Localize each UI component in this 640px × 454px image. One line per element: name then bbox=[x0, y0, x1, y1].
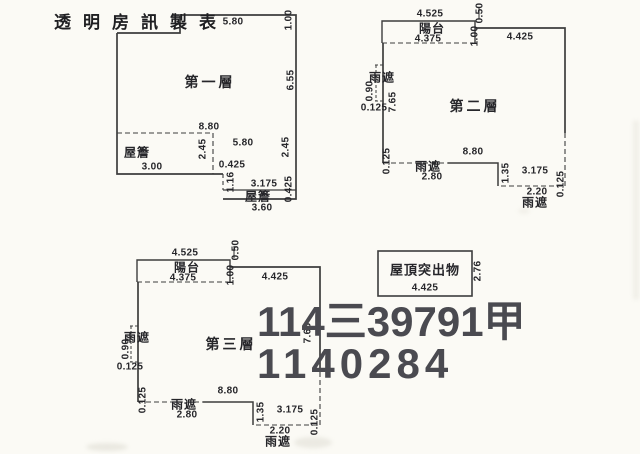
dim-label: 0.125 bbox=[361, 103, 388, 114]
dim-label: 2.45 bbox=[198, 139, 209, 160]
floor2-name: 第二層 bbox=[450, 96, 501, 116]
case-number-watermark-line1: 114三39791甲 bbox=[257, 301, 526, 343]
dim-label: 4.375 bbox=[415, 34, 442, 45]
dim-label: 3.00 bbox=[142, 162, 163, 173]
dim-label: 2.45 bbox=[281, 137, 292, 158]
roof-protrusion-label: 屋頂突出物 bbox=[390, 260, 460, 279]
dim-label: 0.125 bbox=[138, 387, 149, 414]
dim-label: 2.76 bbox=[473, 261, 484, 282]
dim-label: 0.425 bbox=[219, 160, 246, 171]
floor1-name: 第一層 bbox=[185, 72, 236, 92]
dim-label: 0.125 bbox=[382, 148, 393, 175]
dim-label: 2.80 bbox=[422, 172, 443, 183]
floor3-name: 第三層 bbox=[206, 334, 257, 354]
dim-label: 1.35 bbox=[501, 163, 512, 184]
dim-label: 3.175 bbox=[522, 166, 549, 177]
canopy-label: 雨遮 bbox=[265, 433, 291, 450]
dim-label: 1.35 bbox=[256, 402, 267, 423]
dim-label: 4.375 bbox=[170, 273, 197, 284]
dim-label: 0.125 bbox=[310, 409, 321, 436]
dim-label: 0.90 bbox=[121, 339, 132, 360]
dim-label: 8.80 bbox=[218, 386, 239, 397]
dim-label: 4.425 bbox=[507, 32, 534, 43]
dim-label: 0.125 bbox=[556, 171, 567, 198]
dim-label: 4.425 bbox=[262, 272, 289, 283]
dim-label: 1.16 bbox=[226, 172, 237, 193]
dim-label: 8.80 bbox=[463, 147, 484, 158]
dim-label: 1.00 bbox=[470, 26, 481, 47]
dim-label: 3.60 bbox=[252, 203, 273, 214]
dim-label: 0.50 bbox=[231, 240, 242, 261]
dim-label: 0.125 bbox=[117, 362, 144, 373]
document-title: 透明房訊製表 bbox=[54, 8, 228, 33]
dim-label: 1.00 bbox=[284, 10, 295, 31]
case-number-watermark-line2: 1140284 bbox=[257, 343, 453, 385]
dim-label: 4.425 bbox=[412, 283, 439, 294]
dim-label: 6.55 bbox=[286, 70, 297, 91]
dim-label: 0.425 bbox=[284, 176, 295, 203]
eave-label: 屋簷 bbox=[124, 144, 150, 161]
dim-label: 2.80 bbox=[177, 410, 198, 421]
floor-plan-document: 透明房訊製表 第一層 5.80 1.00 6.55 8.80 5.80 2.45… bbox=[0, 0, 640, 454]
dim-label: 0.90 bbox=[365, 81, 376, 102]
dim-label: 3.175 bbox=[277, 405, 304, 416]
dim-label: 5.80 bbox=[233, 138, 254, 149]
dim-label: 7.65 bbox=[388, 92, 399, 113]
dim-label: 4.525 bbox=[417, 9, 444, 20]
dim-label: 8.80 bbox=[199, 122, 220, 133]
dim-label: 0.50 bbox=[475, 3, 486, 24]
canopy-label: 雨遮 bbox=[522, 194, 548, 211]
dim-label: 1.00 bbox=[226, 265, 237, 286]
dim-label: 4.525 bbox=[172, 248, 199, 259]
